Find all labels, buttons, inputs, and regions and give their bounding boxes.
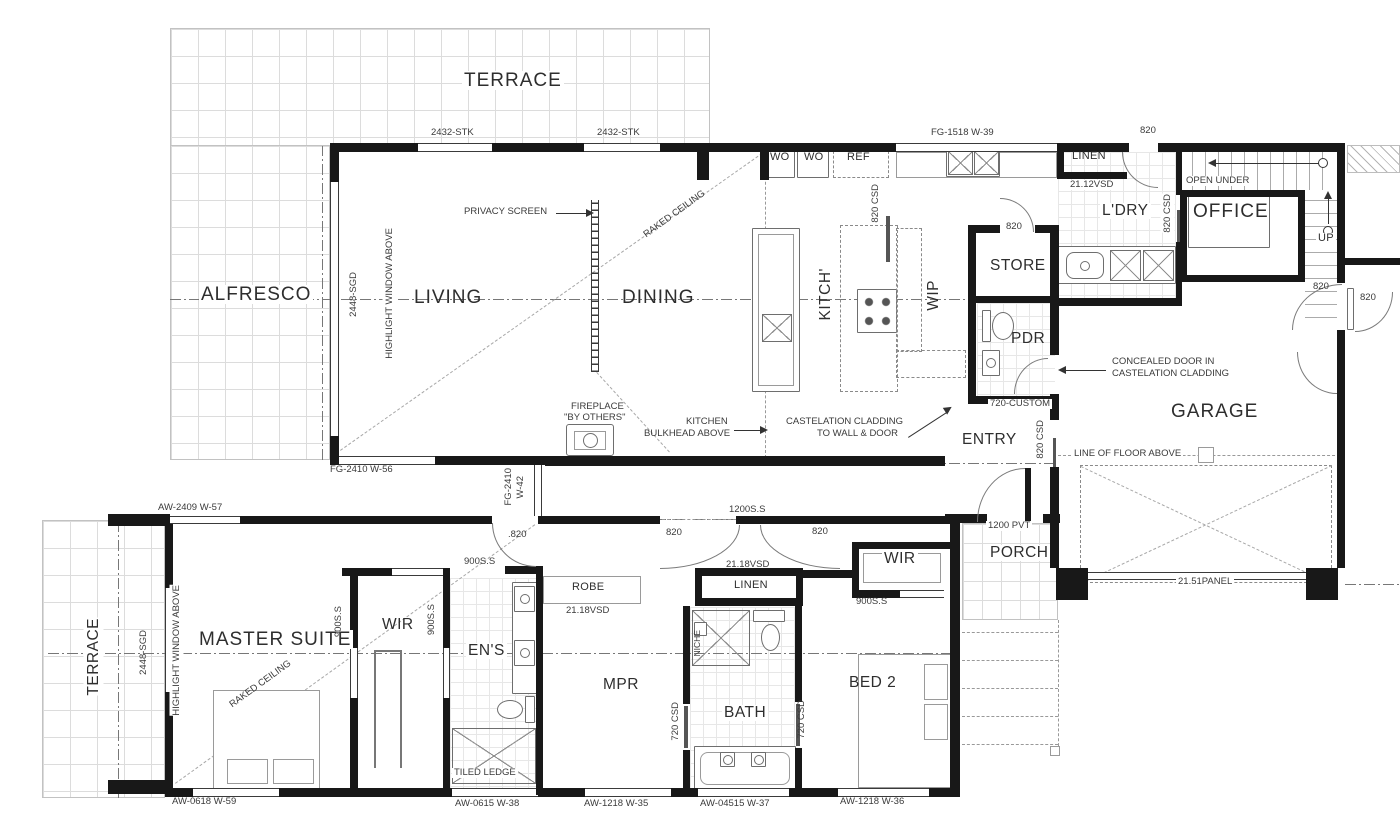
wall: [108, 780, 170, 794]
annotation-arrow-head: [943, 401, 957, 414]
dim-door: 820: [666, 528, 682, 538]
dim-door: 900S.S: [856, 597, 887, 607]
wall: [1180, 275, 1305, 282]
room-label-store: STORE: [990, 258, 1046, 274]
wall: [697, 152, 709, 180]
centerline: [1345, 584, 1400, 585]
window: [330, 182, 339, 436]
wall: [538, 788, 585, 797]
island-bench-inner: [758, 234, 794, 386]
stair-arrow: [1212, 163, 1320, 164]
cavity-slider: [662, 519, 736, 520]
cavity-slider: [443, 648, 450, 698]
window: [534, 465, 542, 516]
room-label-wir-master: WIR: [382, 617, 414, 633]
wall: [1057, 172, 1127, 179]
room-label-linen-hall: LINEN: [734, 580, 768, 591]
room-label-terrace-bottom: TERRACE: [84, 618, 104, 696]
annotation-arrow: [908, 411, 949, 438]
stair-tread: [1305, 265, 1337, 266]
wall: [1180, 190, 1305, 197]
pillow: [924, 664, 948, 700]
dim-window: 2432-STK: [431, 128, 474, 138]
robe-rail: [400, 650, 402, 768]
stair-tread: [1283, 150, 1284, 190]
wall: [683, 750, 690, 795]
dim-door: 2448-SGD: [349, 272, 359, 317]
door-swing: [1297, 352, 1337, 394]
centerline: [322, 146, 323, 460]
sink-bowl: [948, 151, 973, 175]
room-label-laundry: L'DRY: [1100, 203, 1151, 219]
porch-paving: [962, 523, 1058, 620]
dim-door: 820 CSD: [871, 184, 881, 223]
dim-door: 820: [812, 527, 828, 537]
wall: [968, 225, 976, 404]
dim-window: AW-0618 W-59: [172, 797, 236, 807]
dim-door: 21.18VSD: [566, 606, 609, 616]
room-label-bed2: BED 2: [849, 675, 896, 691]
centerline: [930, 463, 1056, 464]
stair-tread: [1305, 252, 1337, 253]
room-label-master-suite: MASTER SUITE: [197, 630, 353, 649]
wall: [536, 566, 543, 795]
sink-bowl: [974, 151, 999, 175]
room-label-pdr: PDR: [1011, 331, 1045, 347]
cavity-slider: [350, 648, 358, 698]
wall: [108, 514, 170, 526]
dim-door: 820 CSD: [1161, 194, 1175, 233]
wall: [695, 598, 803, 606]
wall: [1345, 258, 1400, 265]
toilet: [497, 700, 523, 719]
post: [1050, 746, 1060, 756]
stair-tread: [1305, 213, 1337, 214]
dim-window: AW-2409 W-57: [158, 503, 222, 513]
label-wo: WO: [804, 152, 824, 163]
annotation-arrow-head: [1054, 366, 1066, 374]
step-line: [962, 744, 1058, 745]
window: [698, 788, 789, 797]
centerline: [118, 522, 119, 798]
dim-door: 900S.S: [464, 557, 495, 567]
dim-door: 2448-SGD: [139, 630, 149, 675]
dim-window: AW-0615 W-38: [455, 799, 519, 809]
laundry-tub: [1066, 252, 1104, 279]
dim-door: 21.18VSD: [726, 560, 769, 570]
dim-window: AW-04515 W-37: [700, 799, 770, 809]
wall: [1298, 190, 1305, 282]
stair-tread: [1296, 150, 1297, 190]
floor-plan: TERRACE ALFRESCO LIVING DINING KITCH' WI…: [0, 0, 1400, 820]
note-concealed-door: CONCEALED DOOR IN: [1112, 357, 1214, 367]
window: [584, 143, 660, 152]
window: [585, 788, 671, 797]
cavity-slider: [886, 216, 890, 262]
room-label-garage: GARAGE: [1171, 402, 1258, 421]
annotation-arrow: [556, 213, 586, 214]
stair-tread: [1270, 150, 1271, 190]
dryer: [1143, 250, 1174, 281]
window: [452, 788, 538, 797]
island-sink: [762, 314, 792, 342]
room-label-linen-laundry: LINEN: [1072, 151, 1106, 162]
basin: [982, 350, 1000, 376]
dim-window: W-42: [516, 476, 526, 499]
note-raked-ceiling: RAKED CEILING: [642, 189, 707, 240]
pillow: [273, 759, 314, 784]
wall: [443, 698, 450, 795]
bath-tap: [720, 752, 735, 767]
note-cladding: TO WALL & DOOR: [817, 429, 898, 439]
window: [896, 143, 1057, 152]
window: [170, 516, 240, 524]
room-label-wip: WIP: [926, 280, 942, 311]
wall: [968, 296, 1058, 303]
dim-door: 1200 PVT: [986, 521, 1032, 531]
label-up: UP: [1316, 233, 1336, 244]
wall: [852, 542, 859, 597]
room-label-office: OFFICE: [1193, 202, 1269, 221]
annotation-arrow: [734, 430, 760, 431]
room-label-ens: EN'S: [466, 643, 507, 659]
dim-door: 820: [1313, 282, 1329, 292]
privacy-screen: [591, 200, 599, 372]
room-label-entry: ENTRY: [962, 432, 1017, 448]
wall: [435, 456, 545, 465]
washer: [1110, 250, 1141, 281]
stair-arrow-head: [1204, 159, 1216, 167]
stair-tread: [1305, 226, 1337, 227]
wall: [1180, 190, 1187, 282]
wall: [1043, 514, 1060, 523]
wall: [330, 152, 339, 182]
note-highlight-window: HIGHLIGHT WINDOW ABOVE: [383, 228, 397, 359]
room-label-kitchen: KITCH': [818, 268, 834, 320]
wall: [795, 748, 802, 795]
door-swing: [760, 525, 840, 569]
bathtub-inner: [700, 752, 790, 785]
wall: [852, 516, 960, 524]
toilet-cistern: [982, 310, 991, 342]
note-concealed-door: CASTELATION CLADDING: [1112, 369, 1229, 379]
stair-tread: [1309, 150, 1310, 190]
room-label-porch: PORCH: [988, 545, 1050, 561]
dim-door: 900S.S: [427, 604, 437, 635]
toilet-cistern: [525, 696, 535, 723]
dim-door: 820: [1140, 126, 1156, 136]
room-label-living: LIVING: [414, 288, 482, 307]
wall: [538, 516, 660, 524]
stair-arrow-head: [1324, 187, 1332, 199]
wall: [660, 143, 770, 152]
pier: [1056, 568, 1088, 600]
note-fireplace: FIREPLACE: [571, 402, 624, 412]
wall: [950, 516, 960, 797]
robe-rail: [374, 650, 376, 768]
dim-door: 720 CSD: [797, 700, 807, 739]
post: [1198, 447, 1214, 463]
wall: [1337, 143, 1345, 283]
wall: [492, 143, 584, 152]
room-label-dining: DINING: [622, 288, 695, 307]
cavity-slider: [1053, 438, 1056, 467]
note-privacy-screen: PRIVACY SCREEN: [464, 207, 547, 217]
annotation-arrow-head: [586, 209, 598, 217]
wall: [350, 698, 358, 795]
wall: [760, 152, 769, 180]
basin: [514, 586, 535, 612]
basin: [514, 640, 535, 666]
cavity-slider: [392, 568, 450, 576]
dim-window: FG-2410 W-56: [330, 465, 393, 475]
step-line: [962, 632, 1058, 633]
step-line: [1058, 620, 1059, 756]
wall: [695, 576, 702, 598]
dim-door: .820: [508, 530, 527, 540]
step-line: [962, 688, 1058, 689]
dim-window: 2432-STK: [597, 128, 640, 138]
label-open-under: OPEN UNDER: [1184, 176, 1251, 186]
note-niche: NICHE: [693, 630, 702, 656]
dim-door: 720-CUSTOM: [988, 399, 1052, 409]
door-swing: [977, 468, 1025, 522]
wall: [165, 524, 173, 588]
dim-door: 720 CSD: [671, 702, 681, 741]
pantry-bench: [896, 350, 966, 378]
dim-door: 21.12VSD: [1068, 180, 1115, 190]
wall: [683, 606, 690, 704]
room-label-mpr: MPR: [603, 677, 639, 693]
wall: [1337, 330, 1345, 568]
cavity-slider: [684, 706, 688, 748]
step-line: [962, 716, 1058, 717]
dim-garage-door: 21.51PANEL: [1176, 577, 1234, 587]
stair-tread: [1322, 150, 1323, 190]
pillow: [924, 704, 948, 740]
wall: [443, 568, 450, 648]
room-label-wir-bed2: WIR: [882, 551, 918, 567]
wall: [330, 143, 418, 152]
toilet: [761, 624, 780, 651]
note-bulkhead: KITCHEN: [686, 417, 728, 427]
dim-window: FG-2410: [504, 468, 514, 506]
stair-tread: [1305, 278, 1337, 279]
cavity-slider: [900, 590, 944, 598]
wall: [1176, 152, 1182, 195]
wall: [796, 576, 803, 598]
wall: [1050, 467, 1059, 515]
pivot-door-leaf: [1025, 468, 1031, 522]
wall: [545, 456, 945, 466]
wall: [795, 606, 802, 702]
wall: [240, 516, 492, 524]
dim-door: 1200S.S: [729, 505, 765, 515]
label-wo: WO: [770, 152, 790, 163]
room-label-alfresco: ALFRESCO: [199, 285, 313, 304]
annotation-arrow: [1062, 370, 1106, 371]
dim-window: AW-1218 W-36: [840, 797, 904, 807]
room-label-terrace-top: TERRACE: [462, 71, 564, 90]
window: [418, 143, 492, 152]
bath-tap: [751, 752, 766, 767]
stair-start: [1318, 158, 1328, 168]
roof-hatch: [1347, 145, 1400, 173]
door-leaf: [1347, 288, 1354, 330]
note-line-of-floor: LINE OF FLOOR ABOVE: [1072, 449, 1183, 459]
wall: [1050, 225, 1059, 355]
note-fireplace: "BY OTHERS": [564, 413, 625, 423]
robe-rail: [374, 650, 402, 652]
dim-window: FG-1518 W-39: [931, 128, 994, 138]
dim-door: 820: [1004, 222, 1024, 232]
stair-tread: [1305, 200, 1337, 201]
wall: [803, 570, 852, 578]
dim-window: AW-1218 W-35: [584, 799, 648, 809]
wall: [342, 568, 392, 576]
note-cladding: CASTELATION CLADDING: [786, 417, 903, 427]
note-tiled-ledge: TILED LEDGE: [452, 768, 518, 778]
wall: [736, 516, 852, 524]
room-label-bath: BATH: [722, 705, 768, 721]
robe-slider: [545, 603, 639, 604]
toilet-cistern: [753, 610, 785, 622]
dim-door: 820 CSD: [1036, 420, 1046, 459]
wall: [1158, 143, 1345, 152]
note-bulkhead: BULKHEAD ABOVE: [644, 429, 730, 439]
room-label-robe: ROBE: [572, 582, 604, 593]
pantry-bench: [896, 228, 922, 352]
dim-door: 900S.S: [334, 606, 344, 637]
wall: [279, 788, 452, 797]
fireplace-flue: [583, 433, 598, 448]
wall: [505, 566, 538, 574]
note-highlight-window: HIGHLIGHT WINDOW ABOVE: [170, 585, 184, 716]
step-line: [962, 660, 1058, 661]
cooktop: [857, 289, 897, 333]
stair-tread: [1257, 150, 1258, 190]
label-ref: REF: [847, 152, 870, 163]
wall: [852, 542, 952, 549]
pillow: [227, 759, 268, 784]
pier: [1306, 568, 1338, 600]
annotation-arrow-head: [760, 426, 772, 434]
dim-door: 820: [1360, 293, 1376, 303]
wall: [1050, 298, 1182, 306]
